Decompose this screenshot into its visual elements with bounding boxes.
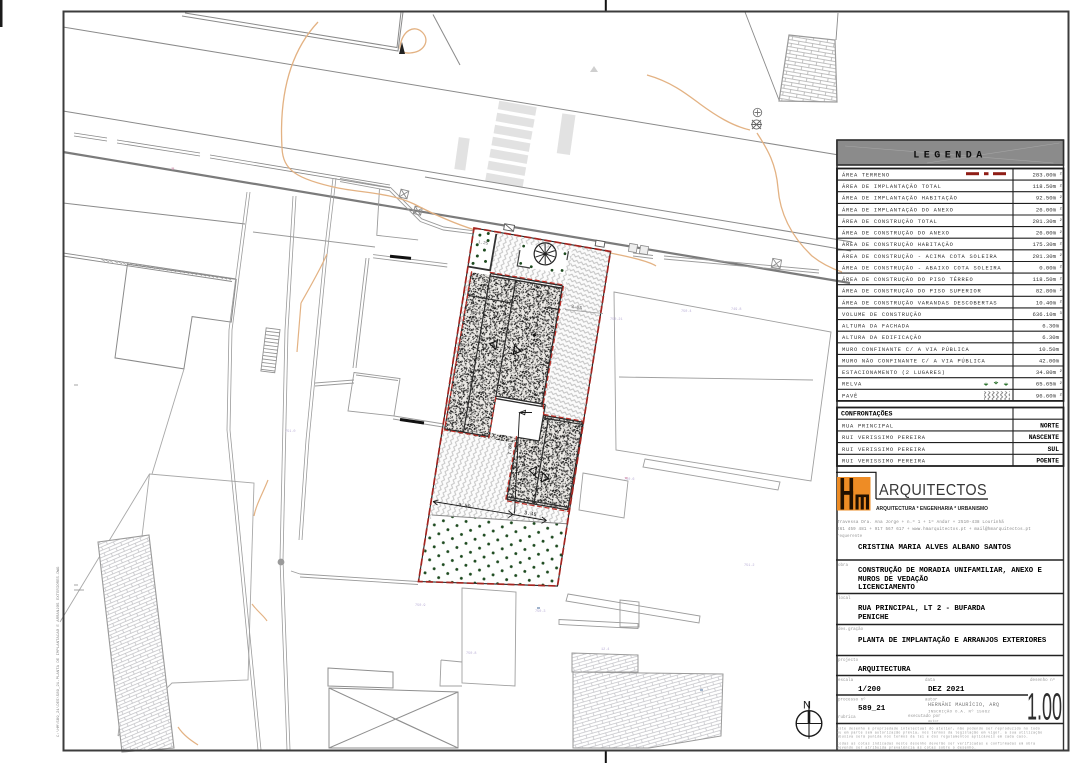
svg-text:des.gração: des.gração (838, 627, 864, 632)
svg-text:3: 3 (1060, 312, 1062, 316)
svg-text:2: 2 (1060, 382, 1062, 386)
svg-text:ÁREA DE IMPLANTAÇÃO DO ANEXO: ÁREA DE IMPLANTAÇÃO DO ANEXO (842, 206, 954, 213)
svg-text:ÁREA DE CONSTRUÇÃO VARANDAS DE: ÁREA DE CONSTRUÇÃO VARANDAS DESCOBERTAS (842, 299, 997, 306)
svg-text:POENTE: POENTE (1036, 458, 1059, 465)
svg-text:2: 2 (1060, 173, 1062, 177)
svg-text:C:\HM\589_21\DES\589_21-PLANTA: C:\HM\589_21\DES\589_21-PLANTA DE IMPLAN… (56, 566, 61, 737)
svg-text:ÁREA DE CONSTRUÇÃO HABITAÇÃO: ÁREA DE CONSTRUÇÃO HABITAÇÃO (842, 241, 954, 248)
svg-text:devendo ser atribuída prevalên: devendo ser atribuída prevalência às cot… (837, 745, 976, 749)
svg-text:SUL: SUL (1048, 446, 1060, 453)
svg-text:751.2: 751.2 (744, 564, 755, 568)
svg-text:749.8: 749.8 (731, 308, 742, 312)
svg-text:ARQUITECTOS: ARQUITECTOS (879, 482, 987, 499)
svg-text:261 459 481 + 917 567 617 + ww: 261 459 481 + 917 567 617 + www.hmarquit… (837, 527, 1031, 532)
svg-text:750.21: 750.21 (610, 318, 623, 322)
svg-text:42.00m: 42.00m (1039, 357, 1060, 364)
svg-text:obra: obra (838, 563, 849, 568)
svg-text:DEZ 2021: DEZ 2021 (928, 686, 965, 694)
svg-text:HERNÂNI MAURÍCIO, ARQ: HERNÂNI MAURÍCIO, ARQ (928, 701, 999, 708)
svg-text:LICENCIAMENTO: LICENCIAMENTO (858, 584, 916, 592)
svg-text:ALTURA DA FACHADA: ALTURA DA FACHADA (842, 324, 910, 330)
svg-text:2: 2 (1060, 277, 1062, 281)
svg-text:LEGENDA: LEGENDA (913, 151, 987, 162)
svg-text:RUA PRINCIPAL: RUA PRINCIPAL (842, 423, 894, 429)
svg-text:2: 2 (1060, 208, 1062, 212)
svg-text:201.30m: 201.30m (1033, 218, 1057, 225)
svg-text:local: local (838, 596, 851, 601)
svg-text:2: 2 (1060, 301, 1062, 305)
svg-text:data: data (925, 678, 936, 683)
svg-text:abusiva será punida nos termos: abusiva será punida nos termos da lei e … (837, 734, 1028, 738)
svg-text:750.9: 750.9 (415, 604, 426, 608)
svg-text:118.50m: 118.50m (1033, 183, 1057, 190)
svg-text:PENICHE: PENICHE (858, 614, 889, 622)
svg-text:636.10m: 636.10m (1033, 311, 1057, 318)
svg-text:750.4: 750.4 (681, 310, 692, 314)
svg-text:92.50m: 92.50m (1036, 195, 1057, 202)
svg-text:ÁREA DE CONSTRUÇÃO - ACIMA COT: ÁREA DE CONSTRUÇÃO - ACIMA COTA SOLEIRA (842, 253, 997, 260)
svg-text:executado por: executado por (908, 714, 941, 719)
svg-text:2: 2 (1060, 266, 1062, 270)
svg-text:65.65m: 65.65m (1036, 381, 1057, 388)
svg-text:2: 2 (1060, 289, 1062, 293)
svg-text:1.00: 1.00 (1027, 686, 1062, 728)
svg-text:PLANTA DE IMPLANTAÇÃO E ARRANJ: PLANTA DE IMPLANTAÇÃO E ARRANJOS EXTERIO… (858, 635, 1047, 645)
svg-text:projecto: projecto (838, 658, 859, 663)
svg-text:ÁREA DE CONSTRUÇÃO DO PISO SUP: ÁREA DE CONSTRUÇÃO DO PISO SUPERIOR (842, 288, 981, 295)
svg-text:PAVÊ: PAVÊ (842, 392, 858, 399)
svg-text:ARQUITECTURA: ARQUITECTURA (858, 666, 911, 674)
svg-text:CONSTRUÇÃO DE MORADIA UNIFAMIL: CONSTRUÇÃO DE MORADIA UNIFAMILIAR, ANEXO… (858, 565, 1043, 575)
svg-text:CONFRONTAÇÕES: CONFRONTAÇÕES (841, 410, 892, 418)
svg-text:rubrica: rubrica (838, 715, 856, 720)
svg-text:96.60m: 96.60m (1036, 392, 1057, 399)
svg-text:751.0: 751.0 (285, 430, 296, 434)
svg-text:2: 2 (1060, 231, 1062, 235)
svg-text:VOLUME DE CONSTRUÇÃO: VOLUME DE CONSTRUÇÃO (842, 311, 922, 318)
svg-text:2: 2 (1060, 196, 1062, 200)
svg-text:RUI VERISSIMO PEREIRA: RUI VERISSIMO PEREIRA (842, 435, 926, 441)
svg-text:ÁREA DE CONSTRUÇÃO DO ANEXO: ÁREA DE CONSTRUÇÃO DO ANEXO (842, 230, 950, 237)
svg-text:RUA PRINCIPAL, LT 2 - BUFARDA: RUA PRINCIPAL, LT 2 - BUFARDA (858, 605, 986, 613)
svg-text:6.30m: 6.30m (1042, 334, 1059, 341)
svg-text:12.4: 12.4 (601, 648, 609, 652)
svg-text:MURO CONFINANTE C/ A VIA PÚBLI: MURO CONFINANTE C/ A VIA PÚBLICA (842, 346, 970, 353)
svg-text:NORTE: NORTE (1040, 422, 1059, 429)
svg-text:requerente: requerente (837, 535, 863, 539)
svg-text:ÁREA DE CONSTRUÇÃO DO PISO TÉR: ÁREA DE CONSTRUÇÃO DO PISO TÉRREO (842, 276, 974, 283)
svg-text:MUROS DE VEDAÇÃO: MUROS DE VEDAÇÃO (858, 574, 929, 584)
svg-text:ARQUITECTURA * ENGENHARIA * UR: ARQUITECTURA * ENGENHARIA * URBANISMO (876, 506, 988, 512)
svg-text:2: 2 (1060, 184, 1062, 188)
svg-text:0.00m: 0.00m (1039, 265, 1056, 272)
svg-text:750.8: 750.8 (466, 652, 477, 656)
svg-text:ÁREA DE CONSTRUÇÃO TOTAL: ÁREA DE CONSTRUÇÃO TOTAL (842, 218, 938, 225)
svg-text:7.80: 7.80 (507, 443, 514, 455)
svg-text:6.30m: 6.30m (1042, 323, 1059, 330)
svg-text:201.30m: 201.30m (1033, 253, 1057, 260)
svg-text:26.00m: 26.00m (1036, 230, 1057, 237)
svg-text:283.00m: 283.00m (1033, 172, 1057, 179)
svg-text:2: 2 (1060, 370, 1062, 374)
svg-text:82.80m: 82.80m (1036, 288, 1057, 295)
svg-text:1/200: 1/200 (858, 686, 881, 694)
svg-text:N: N (803, 700, 811, 712)
svg-text:RUI VERISSIMO PEREIRA: RUI VERISSIMO PEREIRA (842, 447, 926, 453)
svg-text:26.00m: 26.00m (1036, 206, 1057, 213)
svg-text:2: 2 (1060, 219, 1062, 223)
svg-text:2: 2 (1060, 254, 1062, 258)
svg-text:2: 2 (1060, 394, 1062, 398)
svg-text:ÁREA DE CONSTRUÇÃO - ABAIXO CO: ÁREA DE CONSTRUÇÃO - ABAIXO COTA SOLEIRA (842, 265, 1001, 272)
svg-text:RUI VERISSIMO PEREIRA: RUI VERISSIMO PEREIRA (842, 459, 926, 465)
svg-text:750.3: 750.3 (535, 610, 546, 614)
svg-text:escala: escala (838, 678, 854, 683)
svg-text:34.80m: 34.80m (1036, 369, 1057, 376)
svg-text:2: 2 (1060, 242, 1062, 246)
svg-text:118.50m: 118.50m (1033, 276, 1057, 283)
svg-text:ÁREA TERRENO: ÁREA TERRENO (842, 172, 890, 179)
svg-text:RELVA: RELVA (842, 382, 862, 388)
svg-text:ALTURA DA EDIFICAÇÃO: ALTURA DA EDIFICAÇÃO (842, 334, 922, 341)
svg-text:MURO NÃO CONFINANTE C/ A VIA P: MURO NÃO CONFINANTE C/ A VIA PÚBLICA (842, 357, 985, 364)
svg-text:589_21: 589_21 (858, 705, 886, 713)
svg-text:ÁREA DE IMPLANTAÇÃO TOTAL: ÁREA DE IMPLANTAÇÃO TOTAL (842, 183, 942, 190)
svg-text:CRISTINA MARIA ALVES ALBANO SA: CRISTINA MARIA ALVES ALBANO SANTOS (858, 544, 1012, 552)
svg-text:autor: autor (928, 719, 939, 724)
svg-text:ÁREA DE IMPLANTAÇÃO HABITAÇÃO: ÁREA DE IMPLANTAÇÃO HABITAÇÃO (842, 195, 958, 202)
svg-text:175.30m: 175.30m (1033, 241, 1057, 248)
svg-text:NASCENTE: NASCENTE (1029, 434, 1059, 441)
svg-text:10.40m: 10.40m (1036, 299, 1057, 306)
svg-text:ESTACIONAMENTO (2 LUGARES): ESTACIONAMENTO (2 LUGARES) (842, 370, 946, 376)
svg-text:10.50m: 10.50m (1039, 346, 1060, 353)
